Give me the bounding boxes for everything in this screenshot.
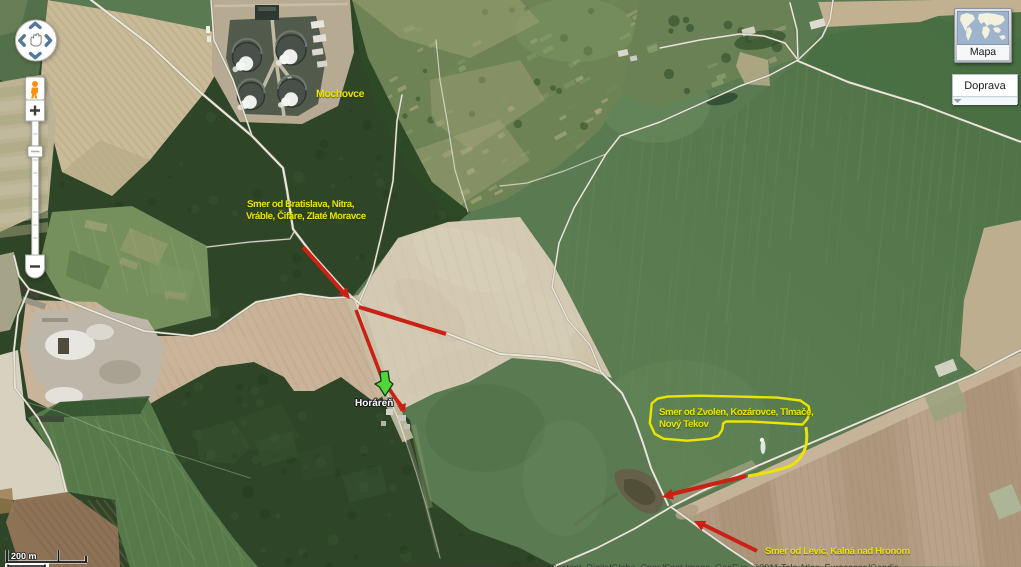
svg-text:Smer od Zvolen, Kozárovce, Tlm: Smer od Zvolen, Kozárovce, Tlmače, — [659, 407, 814, 418]
svg-text:Smer od Levíc, Kalná nad Hrono: Smer od Levíc, Kalná nad Hronom — [765, 546, 911, 557]
svg-text:©2011 Google, SlovakMap ©2011: ©2011 Google, SlovakMap ©2011 GeoContent… — [395, 563, 899, 567]
svg-text:200 m: 200 m — [11, 551, 37, 561]
svg-text:Smer od Bratislava, Nitra,: Smer od Bratislava, Nitra, — [247, 199, 355, 210]
svg-text:Horáreň: Horáreň — [355, 398, 393, 409]
svg-text:Mochovce: Mochovce — [316, 88, 365, 100]
svg-text:Nový Tekov: Nový Tekov — [659, 419, 709, 430]
svg-text:Vráble, Čifáre, Zlaté Moravce: Vráble, Čifáre, Zlaté Moravce — [246, 210, 367, 222]
